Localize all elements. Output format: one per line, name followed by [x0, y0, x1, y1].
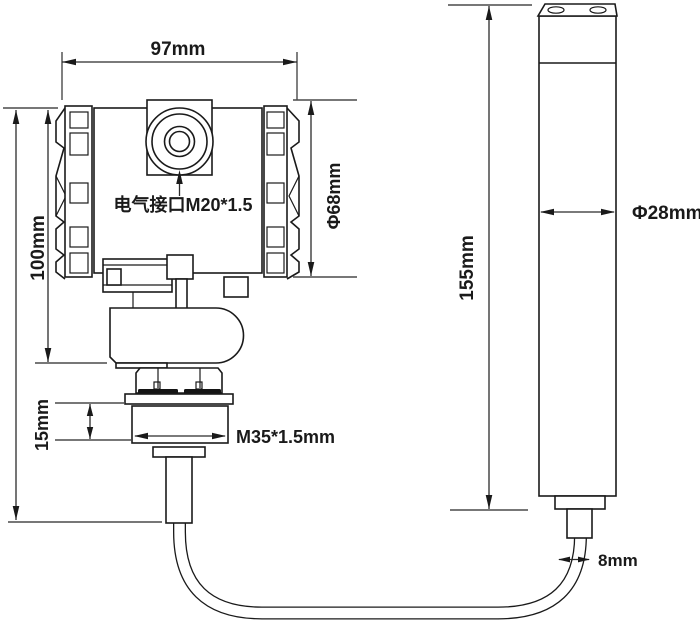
- technical-drawing-canvas: 97mm 100mm Φ68mm 电气接口M20*1.5: [0, 0, 700, 629]
- probe-cable-neck: [567, 509, 592, 538]
- cable-gland-stem: [166, 457, 192, 523]
- left-end-cap: [56, 106, 92, 279]
- probe-length-dim-label: 155mm: [457, 235, 478, 301]
- right-end-cap: [264, 106, 299, 279]
- housing-diameter-dim-label: Φ68mm: [324, 163, 344, 230]
- process-connection: [125, 368, 233, 457]
- probe-bottom-step: [555, 496, 605, 509]
- dim-housing-width: 97mm: [62, 39, 297, 100]
- thread-spec-label: M35*1.5mm: [236, 427, 335, 447]
- housing-height-dim-label: 100mm: [28, 215, 49, 281]
- electrical-connector: [146, 100, 213, 175]
- probe-body: [539, 16, 616, 496]
- dimension-drawing: 97mm 100mm Φ68mm 电气接口M20*1.5: [0, 0, 700, 629]
- flange-washer: [125, 394, 233, 404]
- cable: [180, 521, 581, 613]
- probe-figure: [538, 4, 617, 538]
- pressure-chamber: [110, 308, 244, 368]
- dim-nut-height: 15mm: [32, 399, 131, 451]
- housing-width-dim-label: 97mm: [151, 39, 206, 60]
- dim-probe-length: 155mm: [448, 5, 532, 510]
- nut-height-dim-label: 15mm: [32, 399, 52, 451]
- probe-diameter-dim-label: Φ28mm: [632, 203, 700, 224]
- cable-diameter-dim-label: 8mm: [598, 551, 638, 570]
- small-washer: [153, 447, 205, 457]
- dim-housing-diameter: Φ68mm: [293, 100, 357, 277]
- electrical-port-label: 电气接口M20*1.5: [113, 194, 252, 215]
- probe-top-face: [538, 4, 617, 16]
